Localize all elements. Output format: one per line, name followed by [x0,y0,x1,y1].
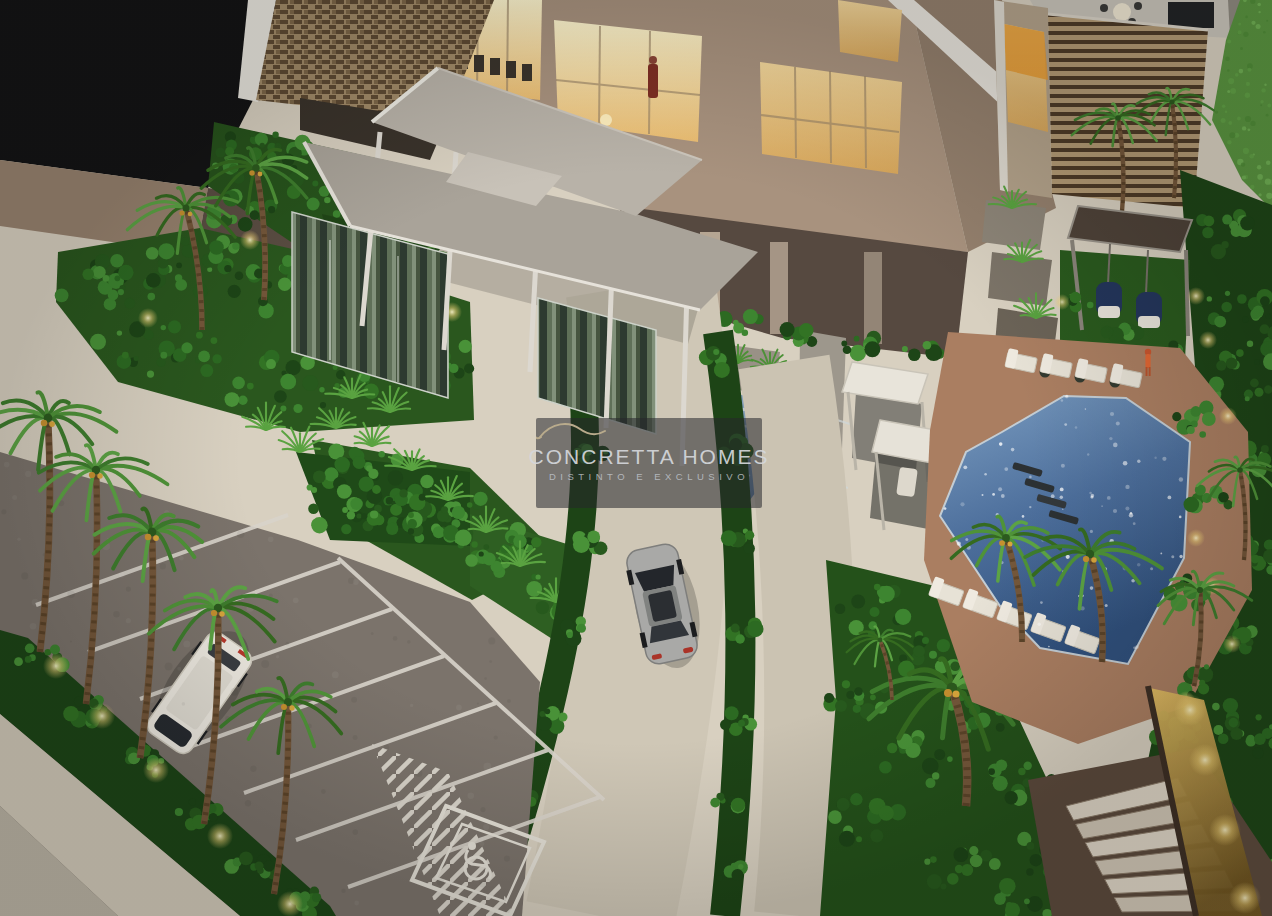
outer-walkway [784,362,810,916]
architectural-model-photo: CONCRETTA HOMES DISTINTO E EXCLUSIVO [0,0,1272,916]
terrace-table [1113,3,1131,21]
corner-lit-window [994,0,1052,198]
pergola-swings [1054,206,1192,361]
model-scene [0,0,1272,916]
